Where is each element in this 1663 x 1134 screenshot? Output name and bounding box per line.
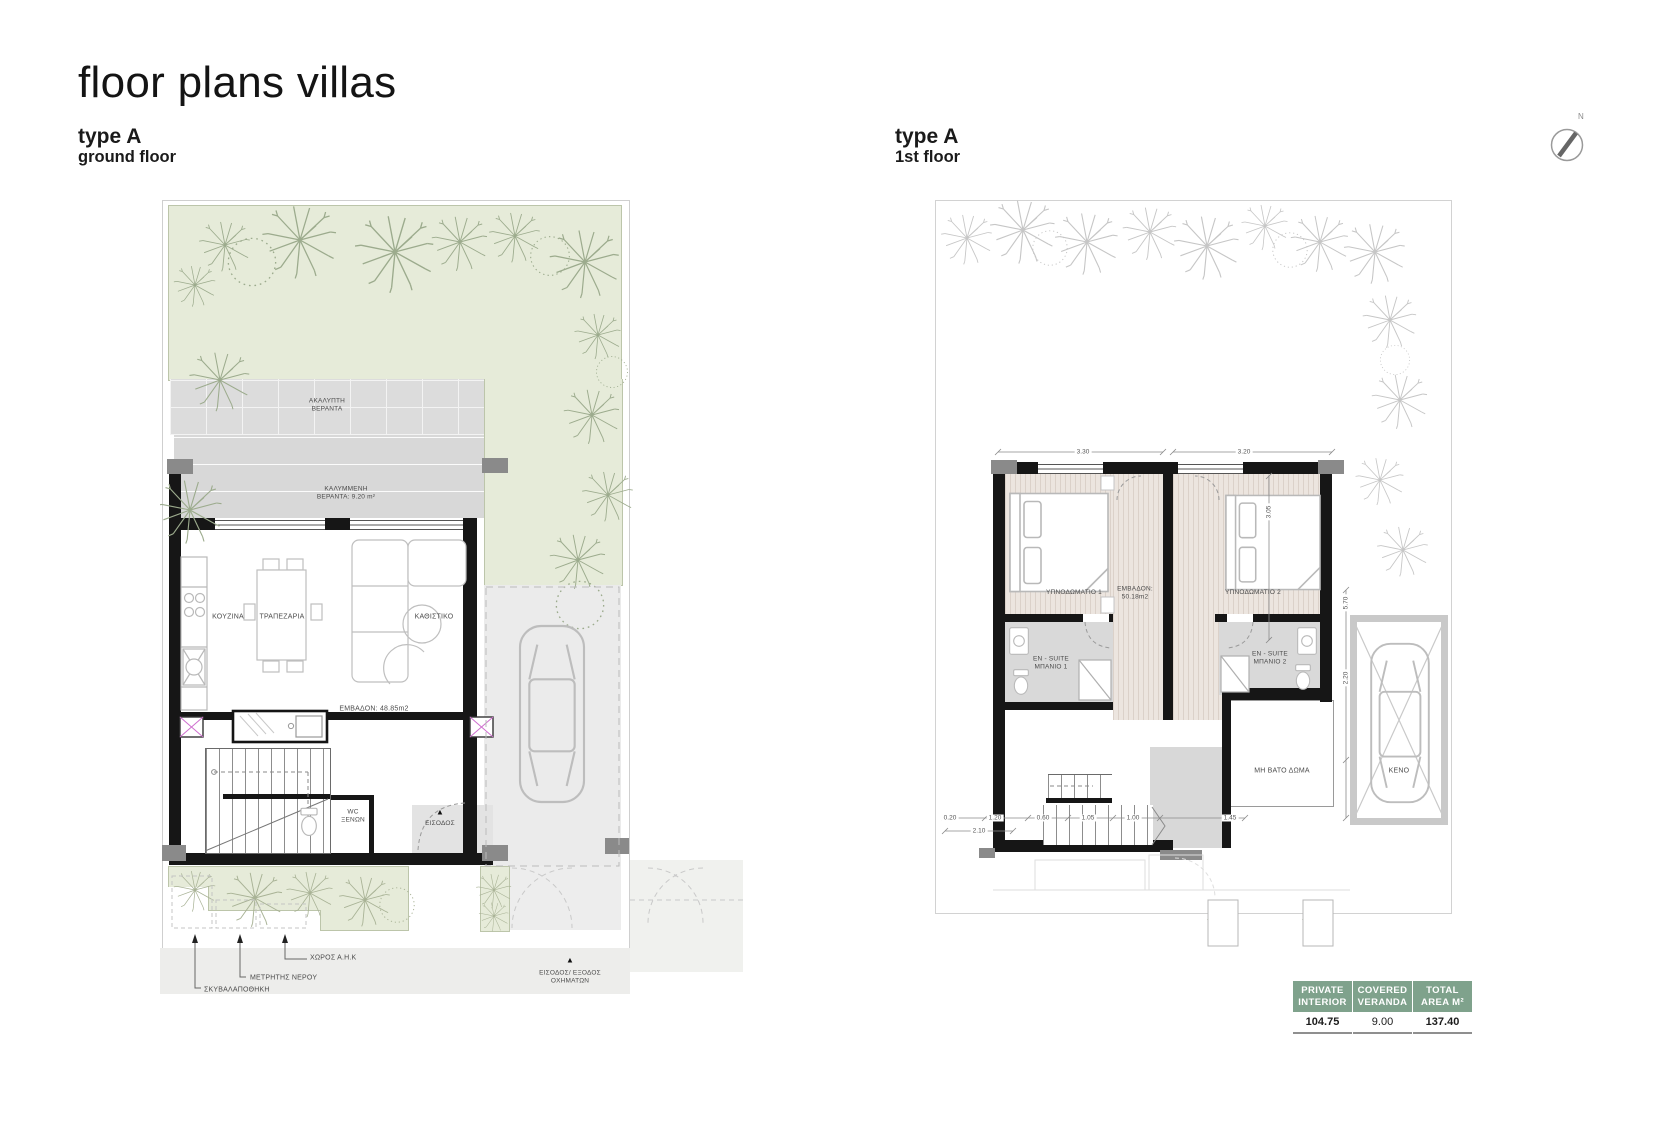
r-wall-roof-top — [1222, 688, 1332, 700]
column-2 — [482, 458, 508, 473]
driveway — [508, 866, 621, 930]
stairwell-landing — [1150, 747, 1223, 848]
r-column-2 — [1318, 460, 1344, 474]
dim-b4: 1.05 — [1080, 815, 1097, 822]
dim-b3: 0.60 — [1035, 815, 1052, 822]
wall-top-1 — [169, 518, 215, 530]
dim-top2: 3.20 — [1236, 449, 1253, 456]
wall-top-pier — [325, 518, 350, 530]
right-plan-heading: type A 1st floor — [895, 126, 1155, 167]
dim-b6: 1.45 — [1222, 815, 1239, 822]
wc-label: WC ΞΕΝΩΝ — [341, 809, 365, 826]
r-wall-right — [1320, 462, 1332, 702]
first-floor-plan: ΥΠΝΟΔΩΜΑΤΙΟ 1 ΕΜΒΑΔΟΝ: 50.18m2 ΥΠΝΟΔΩΜΑΤ… — [935, 200, 1460, 950]
value-covered-veranda: 9.00 — [1353, 1012, 1412, 1034]
garden-planter — [480, 866, 510, 932]
left-plan-type: type A — [78, 126, 338, 148]
header-covered-veranda: COVERED VERANDA — [1353, 981, 1412, 1012]
dim-b1: 0.20 — [942, 815, 959, 822]
right-plan-floor: 1st floor — [895, 148, 1155, 167]
corridor2-floor — [1173, 474, 1223, 720]
staircase — [205, 748, 331, 854]
column-1 — [167, 459, 193, 474]
r-column-4 — [1160, 850, 1202, 860]
window-living-1 — [215, 520, 325, 530]
vehicle-access-label: ΕΙΣΟΔΟΣ/ ΕΞΟΔΟΣ ΟΧΗΜΑΤΩΝ — [539, 970, 601, 987]
carport — [484, 585, 621, 868]
compass-north-label: N — [1578, 112, 1584, 121]
covered-veranda — [174, 435, 484, 518]
area-table-value-row: 104.75 9.00 137.40 — [1293, 1012, 1474, 1034]
bedroom1-window — [1038, 464, 1103, 474]
column-4 — [482, 845, 508, 861]
area-table: PRIVATE INTERIOR COVERED VERANDA TOTAL A… — [1293, 981, 1474, 1034]
ensuite1-door-gap — [1083, 614, 1109, 622]
roof-area — [1222, 700, 1334, 807]
dim-side1: 3.05 — [1266, 504, 1273, 521]
ensuite1-label: EN - SUITE ΜΠΑΝΙΟ 1 — [1033, 656, 1069, 673]
r-wall-party — [1163, 474, 1173, 720]
header-private-interior: PRIVATE INTERIOR — [1293, 981, 1352, 1012]
wall-left — [169, 473, 181, 865]
ensuite2-label: EN - SUITE ΜΠΑΝΙΟ 2 — [1252, 651, 1288, 668]
bedroom2-window — [1178, 464, 1243, 474]
wall-right — [463, 518, 477, 865]
dim-b2: 1.20 — [987, 815, 1004, 822]
r-wall-left — [993, 462, 1005, 852]
page: floor plans villas type A ground floor t… — [0, 0, 1663, 1134]
garden-right — [484, 379, 623, 586]
value-total-area: 137.40 — [1413, 1012, 1472, 1034]
bedroom2-label: ΥΠΝΟΔΩΜΑΤΙΟ 2 — [1225, 589, 1281, 597]
stair-flight-2 — [1043, 805, 1153, 845]
entrance-label: ΕΙΣΟΔΟΣ — [425, 820, 455, 828]
entrance-porch — [412, 805, 493, 853]
r-wall-roof-left — [1222, 700, 1231, 848]
left-plan-floor: ground floor — [78, 148, 338, 167]
garden-bottom-a — [168, 866, 409, 887]
column-5 — [605, 838, 629, 854]
value-private-interior: 104.75 — [1293, 1012, 1352, 1034]
carport-void — [1350, 615, 1448, 825]
entrance-arrow-icon: ▲ — [436, 808, 444, 817]
stair-flight-1 — [1048, 774, 1112, 799]
header-total-area: TOTAL AREA M² — [1413, 981, 1472, 1012]
r-wall-top-3 — [1243, 462, 1320, 474]
wall-mid-1 — [181, 712, 233, 720]
page-title: floor plans villas — [78, 58, 396, 108]
dim-side2: 5.70 — [1343, 595, 1350, 612]
wall-bottom — [169, 853, 493, 865]
garden-bottom-b — [208, 886, 409, 911]
kitchen-label: ΚΟΥΖΙΝΑ — [212, 612, 244, 621]
roof-label: ΜΗ ΒΑΤΟ ΔΩΜΑ — [1254, 766, 1310, 775]
left-plan-heading: type A ground floor — [78, 126, 338, 167]
void-label: ΚΕΝΟ — [1389, 766, 1410, 775]
right-plan-type: type A — [895, 126, 1155, 148]
r-wall-top-1 — [1017, 462, 1038, 474]
dim-b7: 2.10 — [971, 828, 988, 835]
first-area-label: ΕΜΒΑΔΟΝ: 50.18m2 — [1117, 586, 1153, 603]
stair-divider-wall — [223, 794, 330, 799]
area-table-header-row: PRIVATE INTERIOR COVERED VERANDA TOTAL A… — [1293, 981, 1474, 1012]
water-meter-label: ΜΕΤΡΗΤΗΣ ΝΕΡΟΥ — [250, 973, 317, 982]
garden-top — [168, 205, 622, 381]
garden-bottom-c — [320, 910, 409, 931]
r-wall-top-2 — [1103, 462, 1178, 474]
garbage-label: ΣΚΥΒΑΛΑΠΟΘΗΚΗ — [204, 985, 270, 994]
column-3 — [162, 845, 186, 861]
dim-top1: 3.30 — [1075, 449, 1092, 456]
r-wall-ensuite1-b — [1001, 702, 1113, 710]
dining-label: ΤΡΑΠΕΖΑΡΙΑ — [259, 612, 304, 621]
bedroom1-label: ΥΠΝΟΔΩΜΑΤΙΟ 1 — [1046, 589, 1102, 597]
ahk-label: ΧΩΡΟΣ Α.Η.Κ — [310, 953, 356, 962]
ensuite2-door-gap — [1227, 614, 1253, 622]
uncovered-veranda-label: ΑΚΑΛΥΠΤΗ ΒΕΡΑΝΤΑ — [309, 398, 345, 415]
vehicle-arrow-icon: ▲ — [566, 956, 574, 965]
dim-b5: 1.00 — [1125, 815, 1142, 822]
north-compass-icon: N — [1546, 112, 1598, 168]
compass-drawing — [1546, 112, 1598, 168]
r-column-3 — [979, 848, 995, 858]
living-label: ΚΑΘΙΣΤΙΚΟ — [415, 612, 454, 621]
stair-mid-wall — [1046, 798, 1112, 803]
window-living-2 — [350, 520, 463, 530]
ground-area-label: ΕΜΒΑΔΟΝ: 48.85m2 — [339, 704, 408, 713]
dim-side3: 2.20 — [1343, 670, 1350, 687]
covered-veranda-label: ΚΑΛΥΜΜΕΝΗ ΒΕΡΑΝΤΑ: 9.20 m² — [317, 486, 375, 503]
wall-wc-right — [369, 795, 374, 855]
ground-floor-plan: ΑΚΑΛΥΠΤΗ ΒΕΡΑΝΤΑ ΚΑΛΥΜΜΕΝΗ ΒΕΡΑΝΤΑ: 9.20… — [160, 200, 745, 1000]
driveway-extension — [630, 860, 743, 972]
r-column-1 — [991, 460, 1017, 474]
